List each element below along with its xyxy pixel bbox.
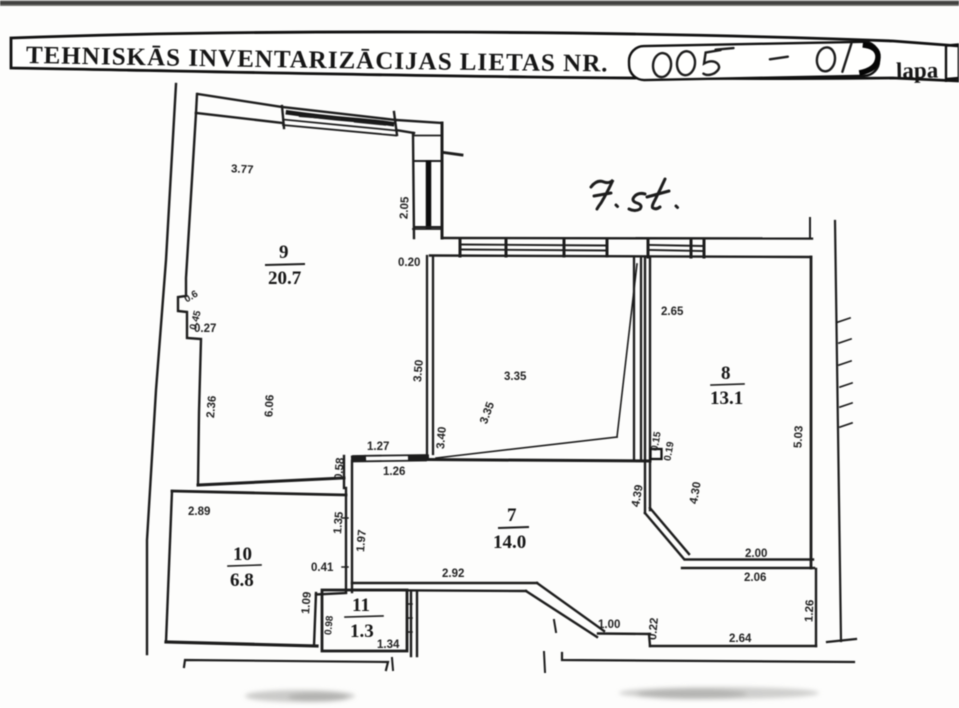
svg-text:1.00: 1.00 — [598, 619, 620, 631]
svg-text:0.22: 0.22 — [647, 617, 661, 640]
svg-text:2.06: 2.06 — [744, 572, 766, 584]
svg-text:1.26: 1.26 — [803, 599, 816, 622]
svg-text:5.03: 5.03 — [792, 425, 805, 448]
svg-text:3.40: 3.40 — [435, 426, 449, 449]
svg-text:8: 8 — [721, 363, 731, 384]
svg-text:0.58: 0.58 — [333, 457, 347, 481]
svg-text:2.89: 2.89 — [188, 506, 210, 518]
svg-text:2.92: 2.92 — [442, 568, 464, 580]
svg-text:lapa: lapa — [896, 58, 939, 84]
svg-text:11: 11 — [352, 595, 370, 616]
svg-text:0.98: 0.98 — [323, 615, 336, 636]
svg-text:1.35: 1.35 — [332, 511, 346, 535]
svg-text:3.77: 3.77 — [231, 163, 254, 176]
svg-text:0.20: 0.20 — [398, 257, 420, 269]
svg-text:1.26: 1.26 — [383, 466, 405, 478]
svg-text:7: 7 — [507, 505, 517, 526]
svg-text:3.50: 3.50 — [412, 359, 426, 382]
svg-text:14.0: 14.0 — [493, 532, 526, 553]
svg-text:20.7: 20.7 — [268, 268, 302, 289]
svg-text:1.34: 1.34 — [377, 639, 400, 651]
svg-text:3.35: 3.35 — [504, 371, 527, 383]
svg-text:2.65: 2.65 — [661, 306, 684, 318]
svg-text:10: 10 — [233, 544, 252, 565]
svg-text:2.00: 2.00 — [745, 548, 767, 560]
svg-text:1.3: 1.3 — [350, 621, 374, 642]
svg-text:2.64: 2.64 — [729, 633, 752, 645]
svg-text:9: 9 — [279, 242, 289, 263]
svg-text:6.06: 6.06 — [263, 394, 276, 417]
svg-text:2.36: 2.36 — [205, 395, 219, 418]
svg-text:1.09: 1.09 — [300, 591, 314, 614]
svg-text:0.27: 0.27 — [194, 323, 216, 335]
svg-text:2.05: 2.05 — [398, 196, 411, 220]
svg-text:13.1: 13.1 — [710, 388, 743, 409]
svg-text:1.27: 1.27 — [367, 441, 389, 453]
svg-text:1.97: 1.97 — [355, 529, 369, 552]
svg-text:0.41: 0.41 — [311, 562, 334, 574]
svg-text:6.8: 6.8 — [230, 570, 254, 591]
